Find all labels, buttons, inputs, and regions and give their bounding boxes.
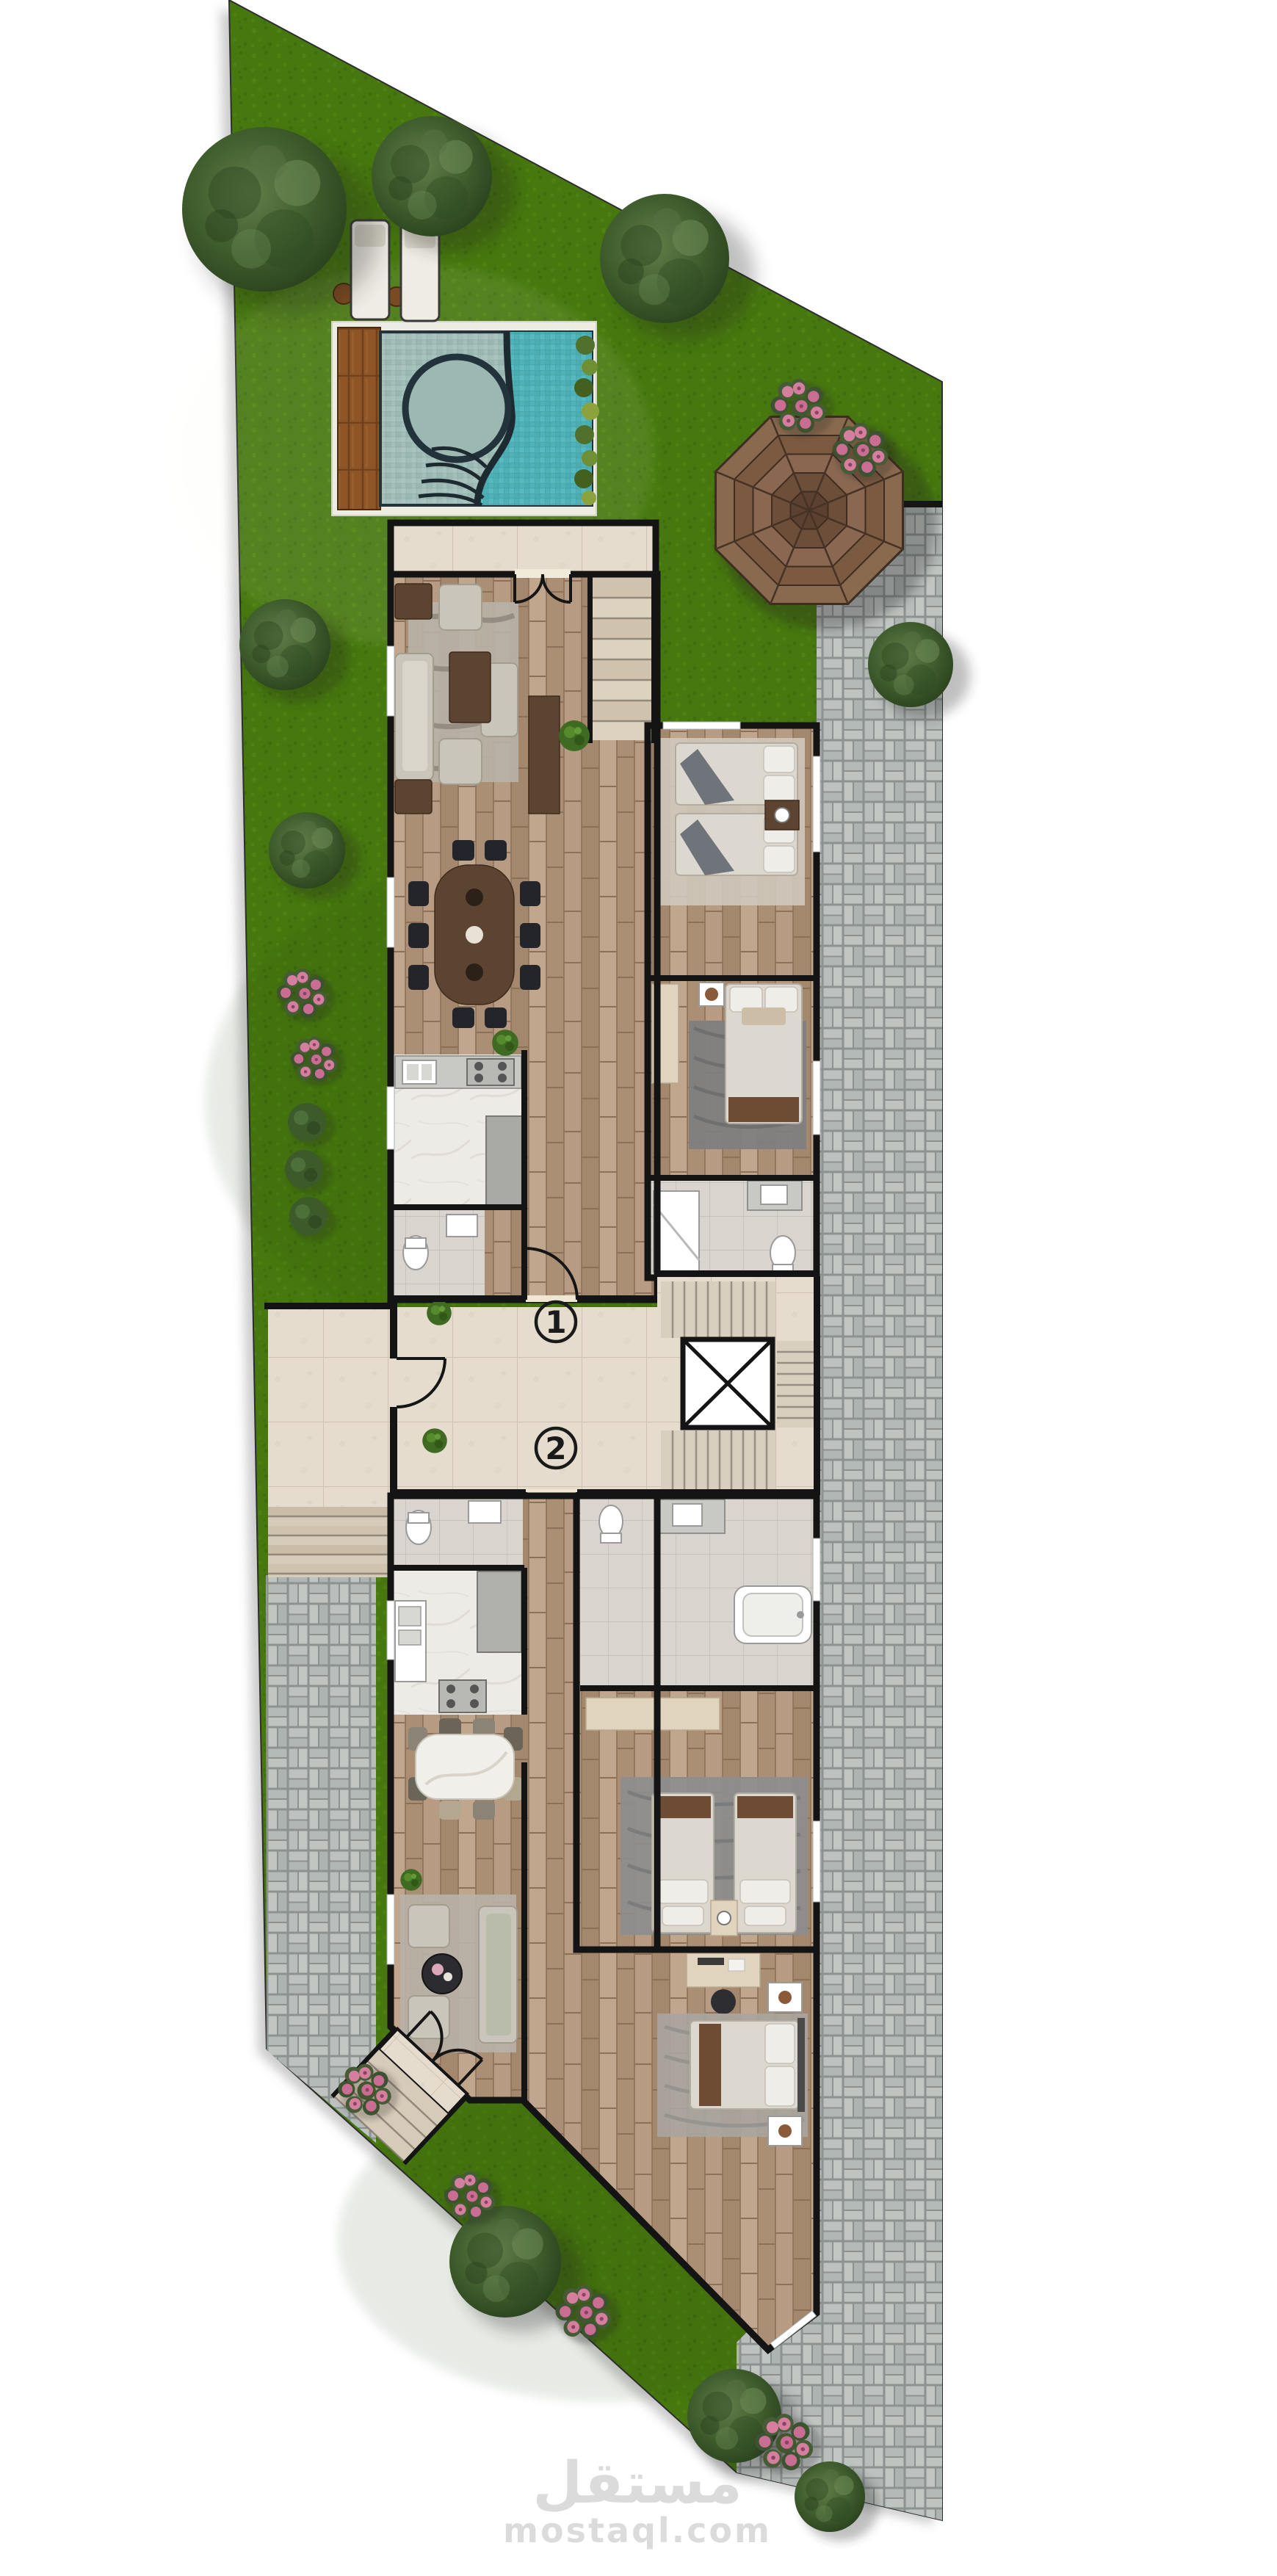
window xyxy=(387,1087,394,1149)
watermark-domain: mostaql.com xyxy=(503,2511,772,2550)
unit-2-number: 2 xyxy=(545,1430,566,1466)
terrace xyxy=(391,523,656,574)
window xyxy=(387,646,394,716)
coffee-table xyxy=(449,652,491,723)
lamp xyxy=(775,808,789,822)
living-room-1 xyxy=(395,584,518,814)
bathroom-1 xyxy=(651,1181,814,1275)
entrance-plaza xyxy=(264,1303,397,1577)
kitchen-2 xyxy=(394,1568,523,1715)
pool-spa-circle xyxy=(405,357,508,460)
wash-basin xyxy=(469,1501,501,1523)
bathroom-2 xyxy=(580,1496,814,1685)
side-table xyxy=(395,780,432,814)
armchair xyxy=(439,585,482,630)
entry-stairs xyxy=(587,574,656,743)
window xyxy=(813,756,820,852)
hall-plant xyxy=(422,1428,447,1453)
pool-deck xyxy=(338,328,380,510)
indoor-plant xyxy=(492,1030,518,1056)
hall-plant xyxy=(427,1300,452,1325)
dresser xyxy=(586,1698,720,1730)
armchair xyxy=(408,1996,449,2038)
lamp xyxy=(717,1911,731,1925)
wardrobe xyxy=(529,696,560,814)
paved-path-left xyxy=(266,1575,376,2143)
coffee-table xyxy=(422,1954,462,1994)
window xyxy=(387,878,394,947)
kitchen-counter xyxy=(477,1571,521,1652)
window xyxy=(813,1538,820,1601)
window xyxy=(663,722,740,729)
window xyxy=(387,1601,394,1660)
indoor-plant xyxy=(400,1869,422,1890)
stove xyxy=(467,1059,514,1085)
plaza-steps xyxy=(268,1507,397,1577)
side-table xyxy=(395,584,432,619)
hedge-bushes xyxy=(285,1103,336,1241)
wc-1 xyxy=(394,1210,485,1297)
window xyxy=(387,1895,394,1964)
plaza-top-wall xyxy=(264,1303,397,1309)
armchair xyxy=(408,1905,449,1947)
watermark: مستقل mostaql.com xyxy=(503,2450,772,2550)
twin-bedroom-1 xyxy=(659,738,805,905)
pool-water xyxy=(380,332,592,505)
wash-basin xyxy=(673,1504,702,1526)
window xyxy=(813,1061,820,1135)
wash-basin xyxy=(761,1185,787,1204)
armchair xyxy=(439,739,482,784)
wash-basin xyxy=(446,1215,477,1237)
stove xyxy=(439,1680,486,1712)
desk-chair xyxy=(711,1989,736,2014)
elevator xyxy=(683,1339,773,1428)
wc-2 xyxy=(394,1496,523,1568)
kitchen-island xyxy=(486,1116,523,1206)
watermark-arabic: مستقل xyxy=(532,2450,742,2517)
window xyxy=(813,1821,820,1902)
indoor-plant xyxy=(559,720,590,751)
kitchen-1 xyxy=(394,1054,524,1209)
unit-1-number: 1 xyxy=(545,1304,566,1340)
site-plan-canvas: 1 2 مستقل mostaql.com xyxy=(0,0,1277,2576)
floor-plan-rendering: 1 2 مستقل mostaql.com xyxy=(0,0,1277,2576)
dining-table xyxy=(416,1734,514,1799)
